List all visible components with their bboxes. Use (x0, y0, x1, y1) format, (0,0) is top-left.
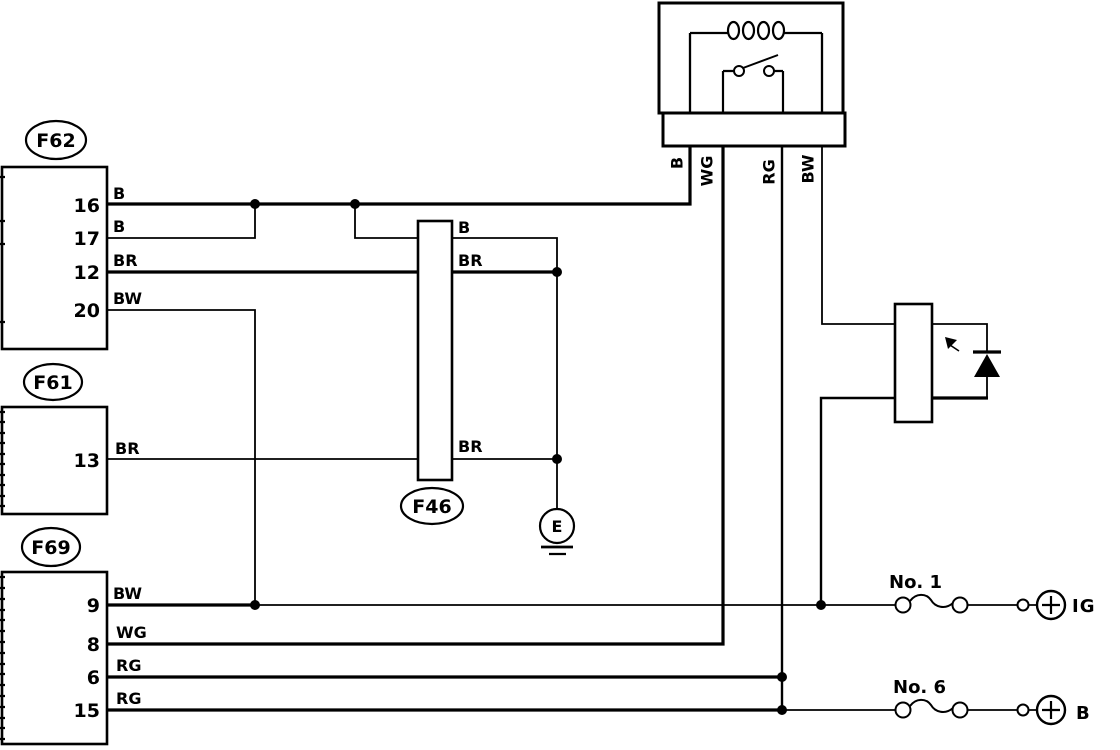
junction-dot (250, 199, 260, 209)
f69-pin-number: 8 (87, 634, 100, 656)
wire-color-label: RG (116, 656, 141, 675)
fuse-no1-symbol (896, 595, 968, 613)
junction-dot (350, 199, 360, 209)
junction-dot (777, 672, 787, 682)
wire-color-label: RG (116, 689, 141, 708)
wire-color-label: BW (113, 584, 142, 603)
f69-pin-number: 15 (74, 700, 100, 722)
relay-outline (659, 3, 843, 113)
wire-color-label: BR (458, 251, 483, 270)
wire-color-label: B (458, 218, 470, 237)
f69-label: F69 (31, 537, 70, 559)
f69-pin-number: 6 (87, 667, 100, 689)
f62-pin-number: 17 (74, 228, 100, 250)
fuse-no6-symbol (896, 700, 968, 718)
junction-dot (777, 705, 787, 715)
fuse-no1-label: No. 1 (889, 572, 942, 593)
wire-diode-top (932, 324, 987, 398)
relay-connector-bar (663, 113, 845, 146)
junction-dot (816, 600, 826, 610)
ground-label: E (552, 517, 563, 536)
wiring-diagram: F62 F61 F69 F46 16 17 12 20 B B BR BW 13… (0, 0, 1120, 750)
wire-color-label: B (113, 217, 125, 236)
fuse-no6-label: No. 6 (893, 677, 946, 698)
relay-coil-icon (728, 22, 784, 39)
relay-switch-icon (723, 55, 783, 113)
f69-pin-number: 9 (87, 595, 100, 617)
wire-bw-relay-to-diodeunit (822, 146, 895, 324)
f61-pin-number: 13 (74, 450, 100, 472)
f62-pin-number: 20 (74, 300, 100, 322)
wire-bw-diodeunit-to-ig (821, 398, 895, 605)
f62-label: F62 (36, 130, 75, 152)
wire-b-branch-to-f46 (355, 204, 418, 238)
ig-terminal-label: IG (1072, 596, 1095, 617)
f62-pin-number: 12 (74, 262, 100, 284)
wire-b-pin16-to-relay (107, 146, 690, 204)
junction-dot (552, 267, 562, 277)
junction-dot (250, 600, 260, 610)
direction-arrow-icon (945, 337, 957, 349)
relay-pin-label: WG (698, 156, 717, 187)
f62-pin-number: 16 (74, 195, 100, 217)
diode-symbol (945, 337, 1001, 377)
ig-terminal-symbol (1018, 591, 1066, 619)
connector-f46-box (418, 221, 452, 480)
plus-icon (1042, 596, 1060, 614)
b-terminal-symbol (1018, 696, 1066, 724)
relay-pin-label: BW (799, 154, 818, 183)
diode-unit-box (895, 304, 932, 422)
f46-label: F46 (412, 496, 451, 518)
junction-dots (250, 199, 826, 715)
b-terminal-label: B (1076, 703, 1091, 724)
wire-wg-pin8-to-relay (107, 146, 723, 644)
wire-color-label: WG (116, 623, 147, 642)
wire-color-label: BR (115, 439, 140, 458)
wire-color-label: BR (458, 437, 483, 456)
relay-pin-label: RG (760, 159, 779, 184)
wire-b-pin17 (107, 204, 255, 238)
wire-color-label: B (113, 184, 125, 203)
direction-arrow-tail (950, 345, 959, 351)
diagram-canvas: F62 F61 F69 F46 16 17 12 20 B B BR BW 13… (0, 0, 1120, 750)
wire-b-f46-to-ground (452, 238, 557, 509)
plus-icon (1042, 701, 1060, 719)
f61-label: F61 (33, 372, 72, 394)
wire-color-label: BR (113, 251, 138, 270)
diode-triangle (974, 354, 1000, 377)
relay-coil-leads (690, 33, 822, 113)
relay-pin-label: B (668, 157, 687, 169)
junction-dot (552, 454, 562, 464)
wire-color-label: BW (113, 289, 142, 308)
